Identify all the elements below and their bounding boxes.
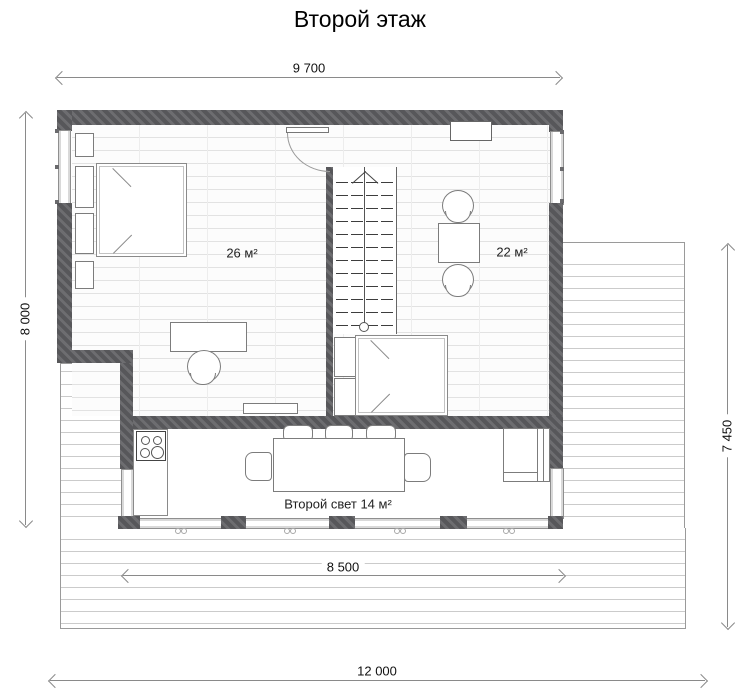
burner (140, 448, 150, 458)
room-label-bedroom: 26 м² (226, 246, 257, 261)
arrowhead (721, 243, 735, 257)
dining-chair (245, 452, 272, 481)
page-title: Второй этаж (294, 6, 426, 33)
section-mark (503, 528, 514, 533)
arrowhead (48, 674, 62, 688)
wall-left-upper (57, 110, 72, 131)
dimension-top: 9 700 (288, 61, 331, 76)
staircase-newel (359, 322, 369, 332)
staircase-center-line (364, 167, 365, 324)
dimension-line-terrace (123, 575, 563, 576)
post-3 (329, 516, 355, 529)
chimney-block (450, 121, 492, 141)
dimension-bottom: 12 000 (352, 664, 402, 679)
room-label-void: Второй свет 14 м² (284, 497, 392, 512)
cabinet (75, 261, 94, 289)
wall-left-stub (57, 350, 133, 363)
dining-chair (404, 453, 431, 482)
bed-double-2 (355, 335, 448, 416)
nightstand (334, 337, 357, 377)
blanket-fold (371, 394, 390, 413)
dimension-right: 7 450 (720, 415, 735, 458)
window-hinge (560, 130, 564, 134)
nightstand (334, 378, 357, 416)
chair (442, 264, 474, 295)
terrace-bottom (60, 528, 686, 629)
wall-right-upper (549, 110, 563, 132)
sofa-line (543, 429, 544, 482)
section-mark (175, 528, 186, 533)
burner (151, 446, 164, 459)
wall-inner-left (120, 363, 133, 469)
dimension-line-top (57, 77, 560, 78)
arrowhead (694, 674, 708, 688)
table (438, 223, 480, 263)
low-shelf (243, 403, 298, 414)
burner (153, 436, 162, 445)
cabinet (75, 133, 94, 157)
sofa-line (504, 472, 537, 473)
blanket-fold (113, 235, 132, 254)
dimension-left: 8 000 (18, 298, 33, 341)
desk-chair (187, 350, 221, 383)
section-mark (394, 528, 405, 533)
window-hinge (560, 167, 564, 171)
nightstand (75, 166, 94, 208)
arrowhead (19, 111, 33, 125)
room-label-hall: 22 м² (496, 245, 527, 260)
post-4 (440, 516, 467, 529)
staircase (333, 167, 397, 334)
floor-plan: Второй этаж (0, 0, 744, 700)
chair (442, 190, 474, 221)
terrace-right (563, 242, 685, 529)
window-hinge (55, 129, 59, 133)
stove (136, 431, 166, 461)
arrowhead (55, 71, 69, 85)
post-2 (221, 516, 246, 529)
wall-stairs (326, 167, 333, 416)
arrowhead (721, 616, 735, 630)
sofa-line (537, 429, 538, 482)
desk (170, 322, 247, 352)
arrowhead (19, 514, 33, 528)
window-hinge (55, 165, 59, 169)
arrowhead (549, 71, 563, 85)
post-corner-right (548, 516, 563, 529)
nightstand (75, 213, 94, 254)
burner (141, 436, 150, 445)
blanket-fold (370, 340, 389, 359)
window-right-bottom (550, 468, 564, 519)
corner-sofa (503, 428, 550, 482)
post-corner-left (118, 516, 140, 529)
section-mark (284, 528, 295, 533)
dimension-terrace: 8 500 (322, 560, 365, 575)
bed-double-1 (96, 163, 187, 257)
blanket-fold (112, 168, 131, 187)
window-left (58, 130, 71, 206)
dimension-line-bottom (50, 680, 705, 681)
dining-table (273, 438, 405, 492)
wall-left-lower (57, 203, 72, 363)
